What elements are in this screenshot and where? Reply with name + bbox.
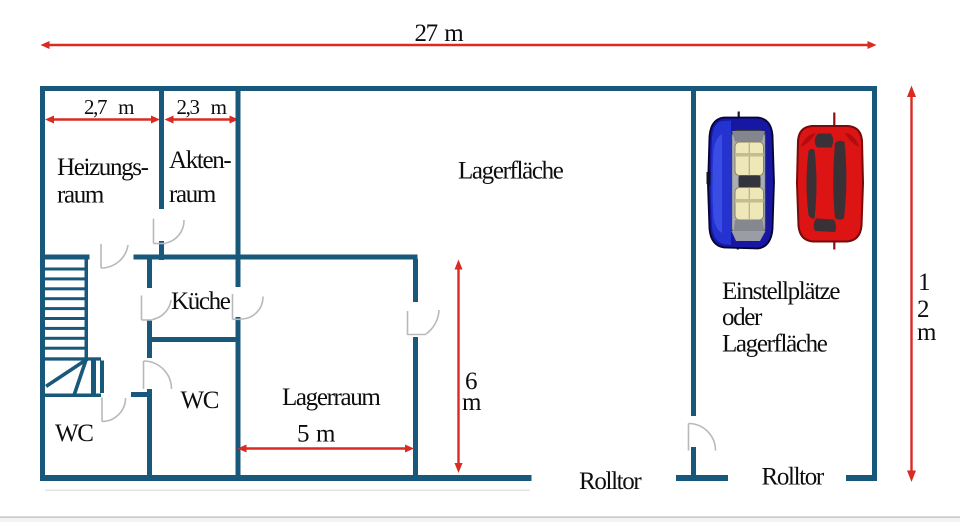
svg-text:oder: oder [722, 304, 763, 331]
svg-text:Rolltor: Rolltor [762, 464, 825, 491]
svg-text:WC: WC [55, 420, 93, 447]
svg-text:Lagerfläche: Lagerfläche [722, 331, 828, 358]
svg-text:m: m [917, 319, 937, 346]
svg-text:Heizungs-: Heizungs- [57, 154, 149, 181]
svg-text:raum: raum [57, 182, 105, 209]
svg-text:1: 1 [918, 269, 929, 296]
svg-text:Küche: Küche [171, 288, 231, 315]
svg-text:Akten-: Akten- [169, 147, 231, 174]
svg-text:5 m: 5 m [297, 421, 336, 448]
svg-text:WC: WC [181, 387, 219, 414]
svg-text:2,7 m: 2,7 m [84, 95, 134, 119]
svg-text:Einstellplätze: Einstellplätze [722, 278, 840, 305]
svg-text:27 m: 27 m [415, 20, 465, 47]
svg-text:Lagerfläche: Lagerfläche [458, 158, 564, 185]
svg-text:Rolltor: Rolltor [579, 468, 642, 495]
svg-text:Lagerraum: Lagerraum [282, 384, 381, 411]
svg-text:m: m [462, 389, 482, 416]
svg-text:2,3 m: 2,3 m [177, 95, 227, 119]
svg-text:raum: raum [169, 181, 217, 208]
